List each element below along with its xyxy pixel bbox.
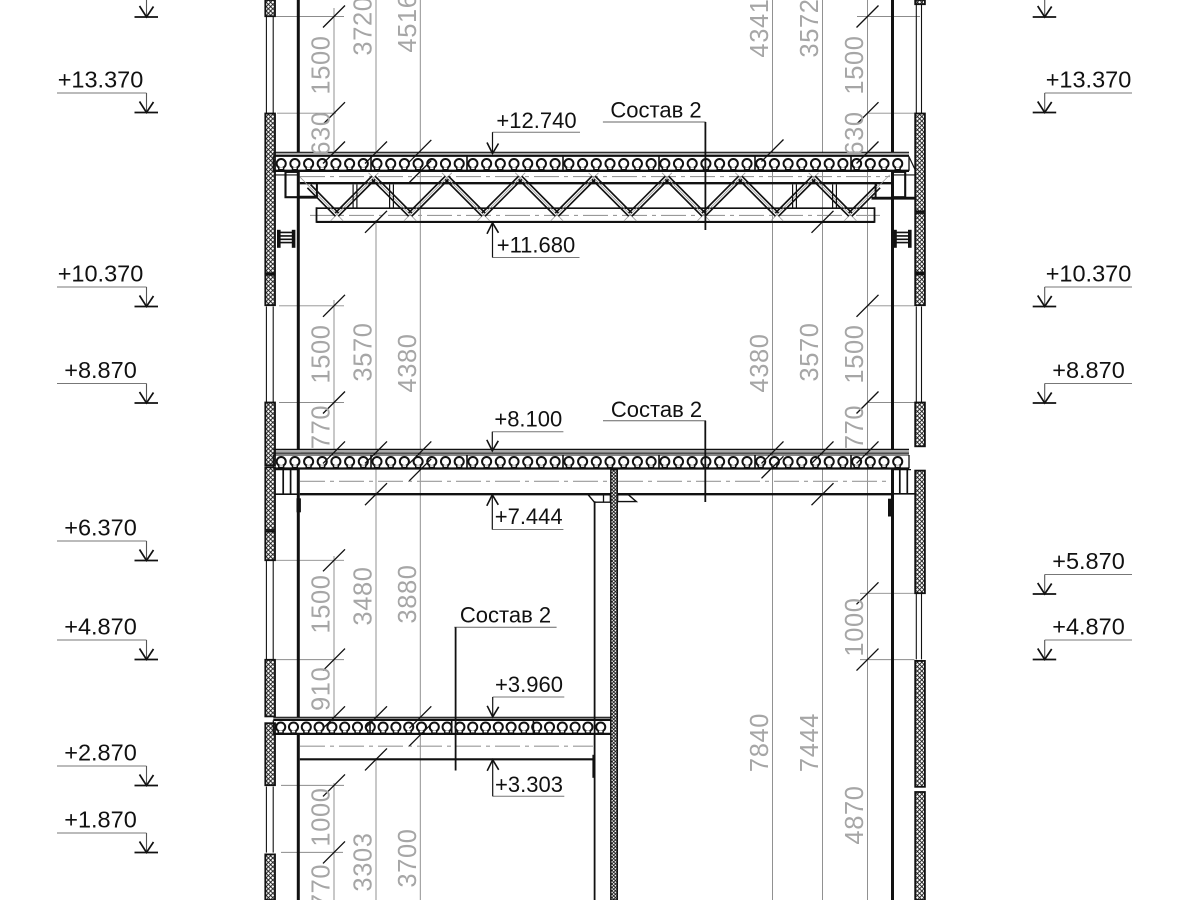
svg-text:3880: 3880 [394,564,422,623]
svg-text:7840: 7840 [746,713,774,772]
svg-text:4870: 4870 [841,785,869,844]
svg-text:+5.870: +5.870 [1052,548,1125,574]
svg-text:770: 770 [308,864,336,900]
svg-text:630: 630 [308,111,336,155]
svg-text:+12.740: +12.740 [496,108,576,133]
svg-text:770: 770 [308,405,336,449]
svg-text:4380: 4380 [746,333,774,392]
svg-text:+1.870: +1.870 [64,807,137,833]
svg-text:Состав 2: Состав 2 [611,397,702,422]
svg-text:1500: 1500 [841,324,869,383]
svg-text:4516: 4516 [394,0,422,53]
svg-text:4380: 4380 [394,333,422,392]
svg-text:+6.370: +6.370 [64,515,137,541]
svg-text:3480: 3480 [350,566,378,625]
svg-text:4341: 4341 [746,0,774,58]
svg-text:1500: 1500 [308,574,336,633]
svg-text:Состав 2: Состав 2 [610,97,701,122]
svg-text:1500: 1500 [308,35,336,94]
svg-text:3570: 3570 [350,322,378,381]
svg-text:+11.680: +11.680 [497,233,576,258]
svg-text:630: 630 [841,111,869,155]
svg-text:+8.870: +8.870 [1052,357,1125,383]
svg-text:+13.370: +13.370 [1046,67,1132,93]
svg-text:+4.870: +4.870 [1052,614,1125,640]
svg-text:3570: 3570 [796,322,824,381]
svg-text:1000: 1000 [841,597,869,656]
svg-text:1500: 1500 [841,35,869,94]
svg-text:3700: 3700 [394,828,422,887]
svg-text:+3.303: +3.303 [495,772,563,797]
svg-text:1000: 1000 [308,787,336,846]
svg-text:7444: 7444 [796,713,824,772]
svg-text:Состав 2: Состав 2 [460,602,551,627]
svg-text:+8.870: +8.870 [64,357,137,383]
svg-text:+7.444: +7.444 [495,504,563,529]
svg-text:1500: 1500 [308,324,336,383]
svg-text:910: 910 [308,667,336,711]
svg-text:+13.370: +13.370 [58,67,144,93]
svg-text:770: 770 [841,405,869,449]
svg-text:+10.370: +10.370 [58,261,144,287]
svg-text:+2.870: +2.870 [64,740,137,766]
svg-text:3303: 3303 [350,832,378,891]
svg-text:3572: 3572 [796,0,824,58]
svg-text:+3.960: +3.960 [495,672,563,697]
svg-text:3720: 3720 [350,0,378,56]
svg-text:+8.100: +8.100 [494,407,562,432]
svg-text:+10.370: +10.370 [1046,261,1132,287]
svg-text:+4.870: +4.870 [64,614,137,640]
